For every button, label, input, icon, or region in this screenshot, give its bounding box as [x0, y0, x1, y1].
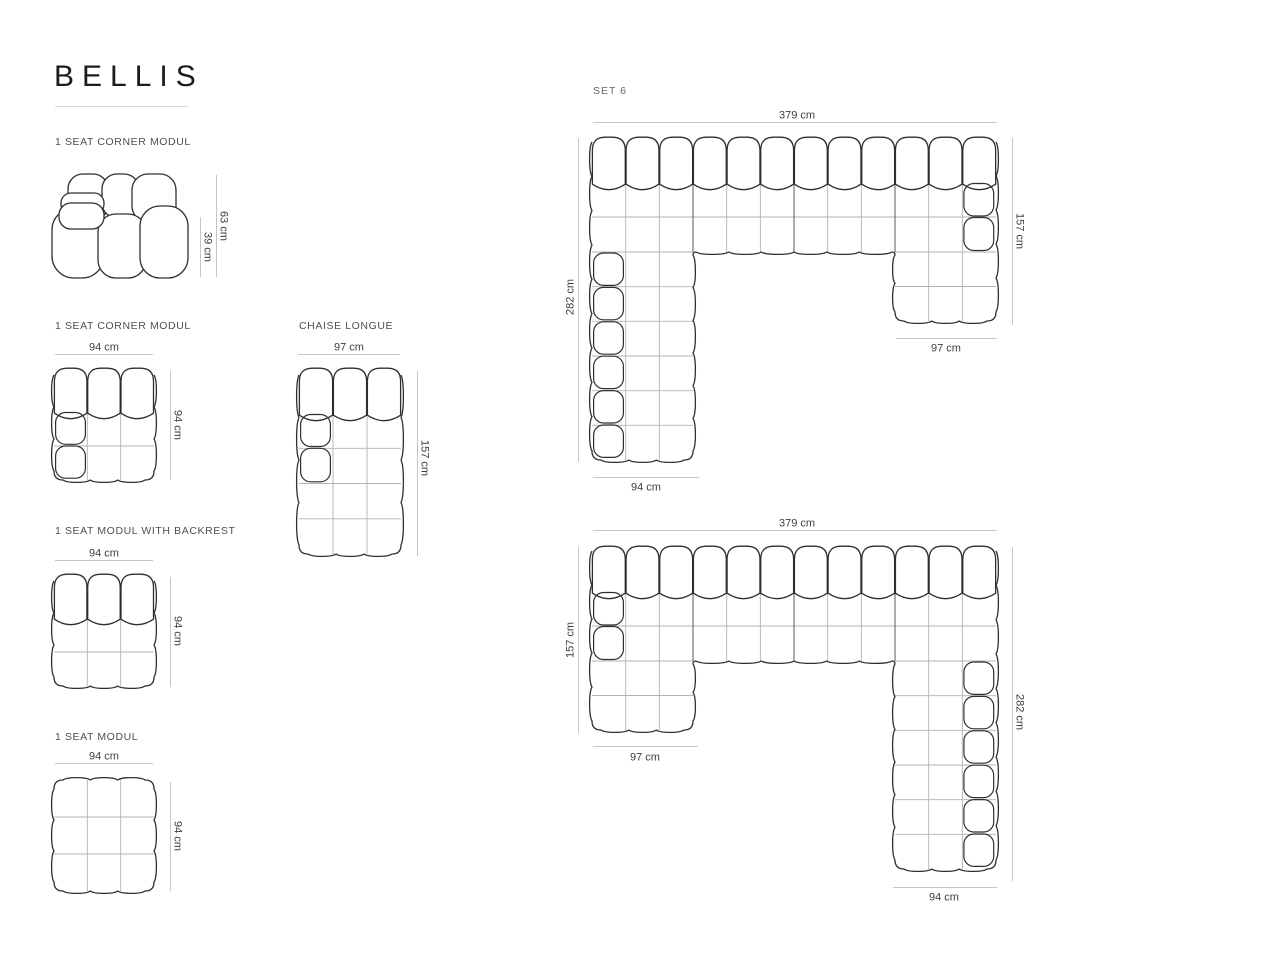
set-mirror-dim-label-bottom-right: 94 cm [929, 893, 959, 904]
corner-module-top-view-drawing [53, 367, 156, 483]
module-label-corner-side: 1 SEAT CORNER MODUL [55, 137, 191, 148]
dim-label-backrest-width: 94 cm [89, 549, 119, 560]
page-title: BELLIS [54, 62, 204, 92]
chaise-longue-drawing [298, 367, 403, 557]
seat-module-drawing [53, 779, 156, 893]
set-mirror-drawing [591, 545, 1001, 877]
set-mirror-dim-label-bottom-left: 97 cm [630, 753, 660, 764]
set-mirror-dim-line-bottom-left [593, 746, 698, 747]
dim-label-chaise-width: 97 cm [334, 343, 364, 354]
dim-line-backrest-width [55, 560, 153, 561]
dim-label-chaise-depth: 157 cm [419, 440, 430, 476]
bellis-dimension-sheet: BELLIS 1 SEAT CORNER MODUL 63 cm 39 cm 1… [0, 0, 1280, 960]
corner-side-view-svg [48, 168, 190, 282]
set-mirror-dim-line-top [593, 530, 997, 531]
dim-label-total-height: 63 cm [218, 211, 229, 241]
module-label-seat: 1 SEAT MODUL [55, 732, 138, 743]
set6-drawing [591, 136, 1001, 466]
module-label-corner-top: 1 SEAT CORNER MODUL [55, 321, 191, 332]
set6-dim-line-left [578, 138, 579, 462]
corner-module-side-view-drawing [48, 168, 190, 282]
title-underline [55, 106, 188, 107]
dim-line-corner-width [55, 354, 153, 355]
set-mirror-dim-line-left [578, 547, 579, 733]
module-label-backrest: 1 SEAT MODUL WITH BACKREST [55, 526, 236, 537]
dim-label-seat-depth: 94 cm [172, 821, 183, 851]
set6-dim-label-top: 379 cm [779, 111, 815, 122]
dim-label-seat-width: 94 cm [89, 752, 119, 763]
set-mirror-dim-label-right: 282 cm [1014, 694, 1025, 730]
corner-top-view-svg [53, 367, 156, 483]
chaise-top-view-svg [298, 367, 403, 557]
dim-label-backrest-depth: 94 cm [172, 616, 183, 646]
set6-label: SET 6 [593, 86, 627, 97]
set6-dim-line-bottom-right [896, 338, 997, 339]
set6-dim-label-bottom-left: 94 cm [631, 483, 661, 494]
dim-line-seat-width [55, 763, 153, 764]
dim-line-chaise-width [298, 354, 400, 355]
module-label-chaise: CHAISE LONGUE [299, 321, 393, 332]
set-mirror-svg [591, 545, 1001, 877]
set6-svg [591, 136, 1001, 466]
backrest-module-svg [53, 573, 156, 689]
dim-label-corner-depth: 94 cm [172, 410, 183, 440]
dim-label-seat-height: 39 cm [202, 232, 213, 262]
seat-module-svg [53, 779, 156, 893]
set6-dim-label-bottom-right: 97 cm [931, 344, 961, 355]
set-mirror-dim-label-left: 157 cm [566, 622, 577, 658]
dim-label-corner-width: 94 cm [89, 343, 119, 354]
set-mirror-dim-label-top: 379 cm [779, 519, 815, 530]
set6-dim-label-left: 282 cm [566, 279, 577, 315]
backrest-module-drawing [53, 573, 156, 689]
set6-dim-label-right: 157 cm [1014, 213, 1025, 249]
set6-dim-line-bottom-left [593, 477, 699, 478]
set6-dim-line-top [593, 122, 997, 123]
set-mirror-dim-line-bottom-right [893, 887, 997, 888]
